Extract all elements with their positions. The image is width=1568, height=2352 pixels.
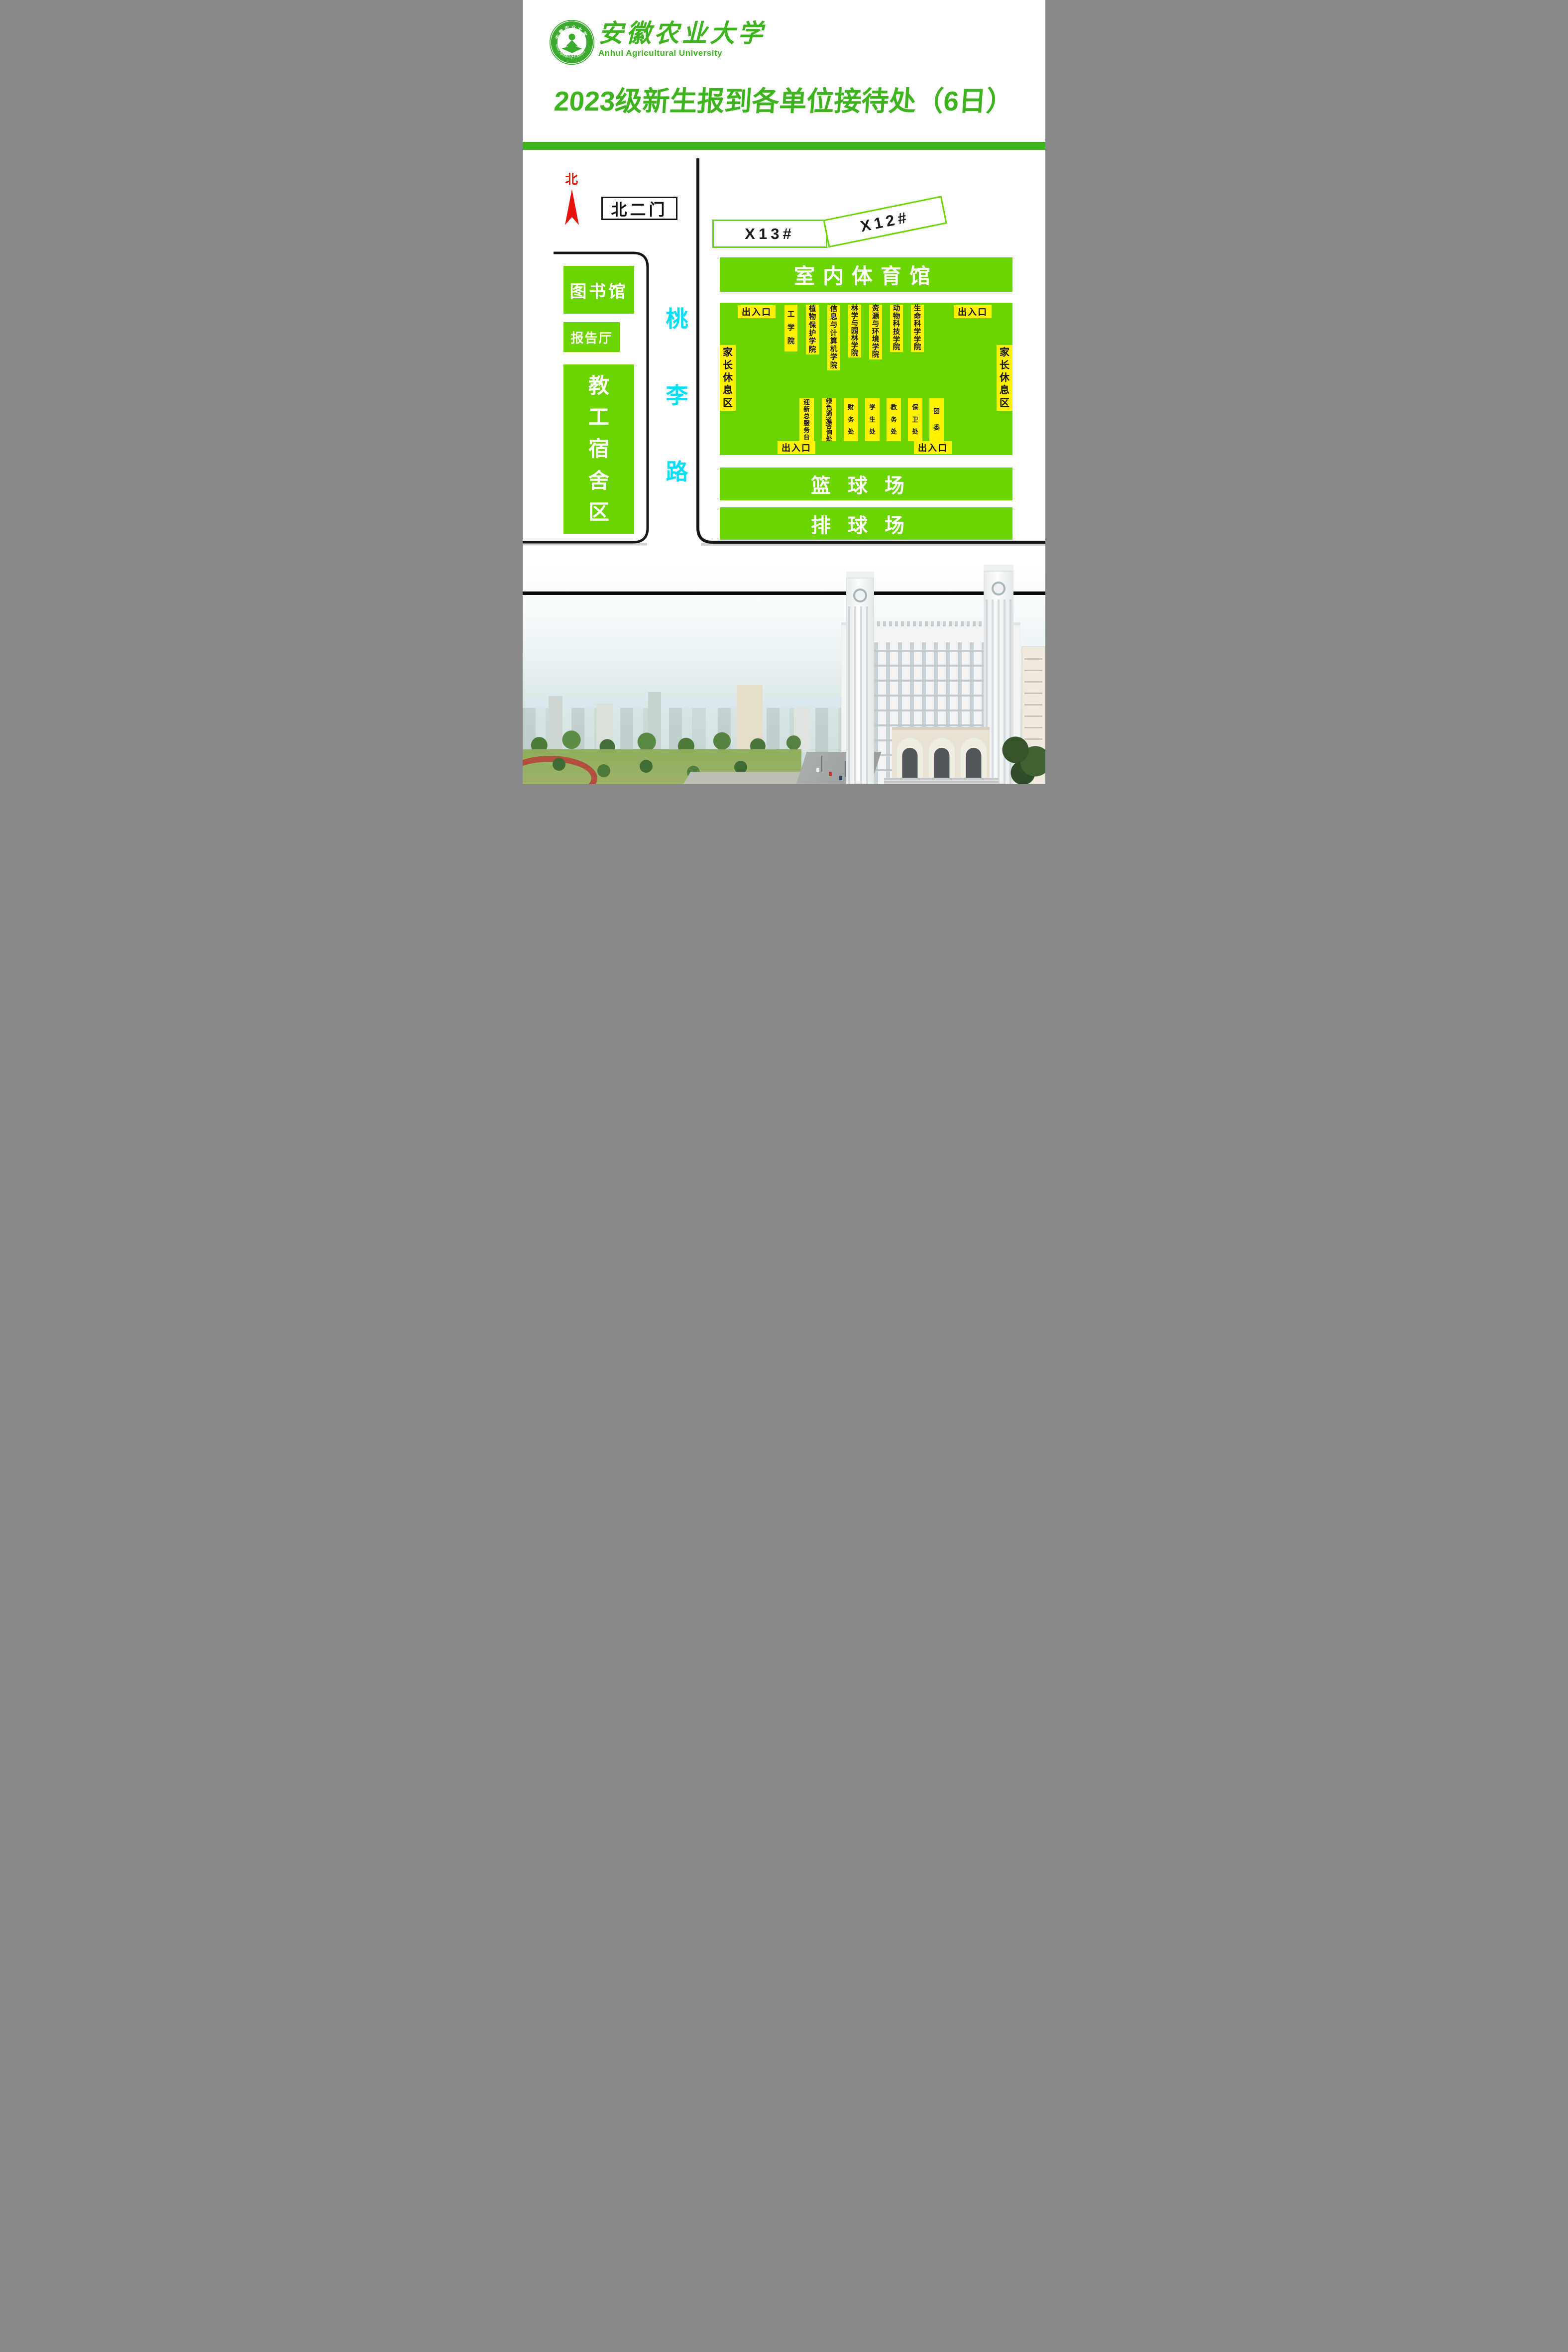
college-desk-info-computer: 信息与计算机学院	[827, 305, 840, 370]
entrance-top-right: 出入口	[954, 305, 992, 318]
volleyball-court-block: 排球场	[720, 507, 1012, 540]
entrance-bottom-right: 出入口	[914, 441, 952, 454]
lecture-hall-block: 报告厅	[563, 322, 620, 352]
college-desk-resources-environment: 资源与环境学院	[869, 305, 882, 359]
staff-dormitory-block: 教工宿舍区	[563, 364, 634, 534]
header-divider-bar	[523, 142, 1045, 150]
building-tower-left	[846, 572, 874, 784]
entrance-top-left: 出入口	[738, 305, 776, 318]
library-block: 图书馆	[563, 266, 634, 314]
photo-top-border	[523, 591, 1045, 595]
university-seal-icon: 安徽农业大学 Anhui Agricultural University 192…	[549, 19, 595, 66]
building-cornice	[871, 621, 986, 626]
north-label: 北	[559, 169, 584, 188]
dorm-x12-block: X12#	[823, 196, 947, 247]
seal-year: 1928	[567, 54, 577, 59]
building-steps	[884, 778, 999, 784]
college-desk-life-science: 生命科学学院	[911, 305, 924, 352]
poster-page: 安徽农业大学 Anhui Agricultural University 192…	[523, 0, 1045, 784]
dorm-x13-block: X13#	[712, 220, 827, 248]
basketball-court-block: 篮球场	[720, 468, 1012, 500]
college-desk-plant-protection: 植物保护学院	[806, 305, 819, 354]
service-desk-security: 保卫处	[908, 398, 922, 441]
service-desk-welcome-center: 迎新总服务台	[799, 398, 814, 441]
seal-person-icon	[568, 34, 575, 40]
service-desk-academic-affairs: 教务处	[887, 398, 901, 441]
taoli-road-label: 桃李路	[665, 301, 689, 486]
entrance-bottom-left: 出入口	[778, 441, 815, 454]
college-desk-engineering: 工学院	[784, 305, 797, 352]
service-desk-student-affairs: 学生处	[865, 398, 880, 441]
parent-rest-area-right: 家长休息区	[997, 345, 1012, 411]
university-name-cn: 安徽农业大学	[598, 20, 766, 47]
college-desk-forestry-landscape: 林学与园林学院	[848, 305, 861, 357]
indoor-gym-block: 室内体育馆	[720, 257, 1012, 292]
brand-block: 安徽农业大学 Anhui Agricultural University	[598, 20, 766, 58]
college-desk-animal-science: 动物科技学院	[890, 305, 903, 352]
service-desk-green-channel: 绿色通道咨询处	[822, 398, 836, 441]
north-second-gate-label: 北二门	[601, 197, 677, 220]
campus-photo	[523, 563, 1045, 784]
right-trees	[1001, 727, 1045, 784]
service-desk-youth-league: 团委	[929, 398, 944, 441]
parent-rest-area-left: 家长休息区	[720, 345, 736, 411]
page-title: 2023级新生报到各单位接待处（6日）	[523, 79, 1045, 118]
north-arrow-icon	[565, 189, 579, 225]
service-desk-finance: 财务处	[844, 398, 858, 441]
university-name-en: Anhui Agricultural University	[598, 48, 766, 58]
